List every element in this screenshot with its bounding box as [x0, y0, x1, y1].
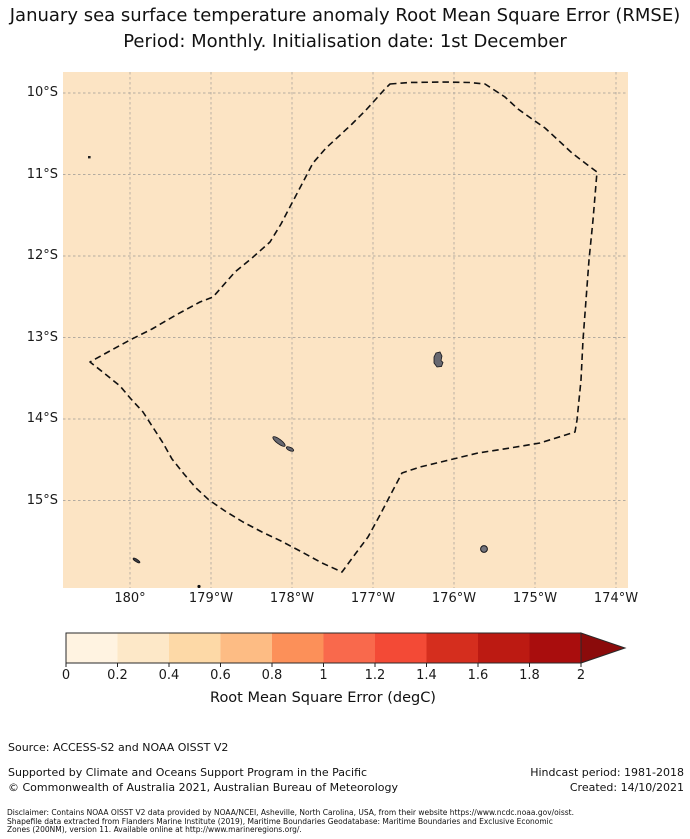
colorbar-segment [66, 633, 118, 663]
eez-boundary-outline [90, 82, 597, 572]
colorbar-segment [324, 633, 376, 663]
map-plot [63, 72, 628, 588]
colorbar-segment [530, 633, 582, 663]
y-axis-tick-label: 14°S [0, 410, 58, 428]
colorbar-tick-label: 1.4 [405, 668, 449, 683]
chart-title: January sea surface temperature anomaly … [0, 3, 690, 55]
colorbar-tick-label: 0.4 [147, 668, 191, 683]
colorbar [0, 630, 690, 670]
colorbar-segment [375, 633, 427, 663]
x-axis-tick-label: 175°W [500, 591, 570, 607]
colorbar-tick-label: 2 [559, 668, 603, 683]
island-group [88, 156, 487, 588]
disclaimer-line-3: Zones (200NM), version 11. Available onl… [7, 826, 690, 834]
chart-title-line1: January sea surface temperature anomaly … [0, 3, 690, 29]
footer-hindcast-period: Hindcast period: 1981-2018 [530, 766, 684, 779]
y-axis-tick-label: 12°S [0, 247, 58, 265]
x-axis-tick-label: 180° [95, 591, 165, 607]
x-axis-tick-label: 174°W [581, 591, 651, 607]
x-axis-tick-label: 176°W [419, 591, 489, 607]
colorbar-tick-label: 1.8 [508, 668, 552, 683]
colorbar-label: Root Mean Square Error (degC) [63, 690, 583, 706]
colorbar-segment [118, 633, 170, 663]
colorbar-tick-label: 0.6 [199, 668, 243, 683]
colorbar-segment [427, 633, 479, 663]
y-axis-tick-label: 15°S [0, 492, 58, 510]
colorbar-segment [478, 633, 530, 663]
footer-source: Source: ACCESS-S2 and NOAA OISST V2 [8, 741, 228, 754]
island-shape [88, 156, 91, 158]
island-shape [286, 446, 295, 452]
colorbar-segment [169, 633, 221, 663]
island-shape [197, 585, 200, 588]
colorbar-tick-label: 1 [302, 668, 346, 683]
island-shape [132, 557, 140, 563]
y-axis-tick-label: 10°S [0, 84, 58, 102]
footer-created-date: Created: 14/10/2021 [570, 781, 684, 794]
y-axis-tick-label: 13°S [0, 329, 58, 347]
x-axis-tick-label: 178°W [257, 591, 327, 607]
colorbar-tick-label: 1.2 [353, 668, 397, 683]
map-canvas [63, 72, 628, 588]
colorbar-tick-label: 0.2 [96, 668, 140, 683]
colorbar-segment [221, 633, 273, 663]
x-axis-tick-label: 177°W [338, 591, 408, 607]
y-axis-tick-label: 11°S [0, 166, 58, 184]
disclaimer-line-2: Shapefile data extracted from Flanders M… [7, 818, 690, 826]
colorbar-tick-label: 0.8 [250, 668, 294, 683]
colorbar-tick-label: 1.6 [456, 668, 500, 683]
colorbar-extend-arrow [581, 633, 625, 663]
chart-title-line1-text: January sea surface temperature anomaly … [10, 3, 681, 29]
colorbar-segment [272, 633, 324, 663]
chart-title-line2: Period: Monthly. Initialisation date: 1s… [0, 29, 690, 55]
island-shape [272, 435, 287, 448]
island-shape [434, 352, 443, 367]
footer-copyright: © Commonwealth of Australia 2021, Austra… [8, 781, 398, 794]
x-axis-tick-label: 179°W [176, 591, 246, 607]
disclaimer-line-1: Disclaimer: Contains NOAA OISST V2 data … [7, 809, 690, 817]
island-shape [481, 546, 488, 553]
footer-supported: Supported by Climate and Oceans Support … [8, 766, 367, 779]
colorbar-tick-label: 0 [44, 668, 88, 683]
